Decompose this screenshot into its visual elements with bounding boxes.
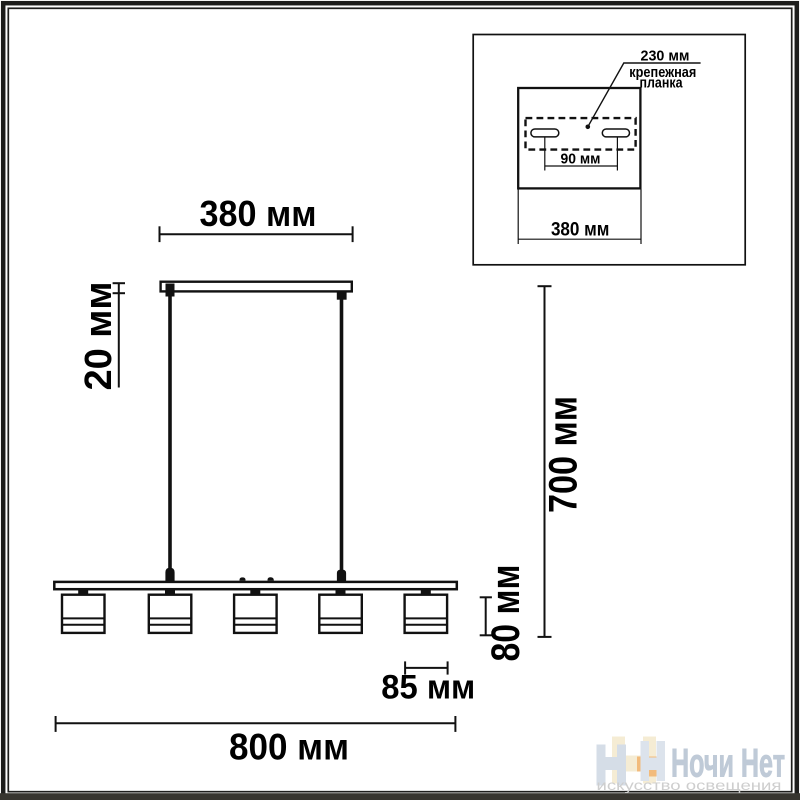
svg-text:планка: планка — [640, 76, 684, 92]
svg-text:20 мм: 20 мм — [78, 282, 120, 391]
svg-text:700 мм: 700 мм — [542, 396, 586, 513]
svg-text:искусство освещения: искусство освещения — [597, 778, 782, 793]
svg-text:90 мм: 90 мм — [561, 152, 601, 168]
svg-text:380 мм: 380 мм — [551, 219, 610, 240]
svg-text:230 мм: 230 мм — [641, 49, 690, 65]
svg-text:380 мм: 380 мм — [200, 193, 317, 234]
svg-text:800 мм: 800 мм — [229, 727, 349, 768]
svg-text:80 мм: 80 мм — [484, 565, 528, 662]
svg-text:85 мм: 85 мм — [381, 669, 475, 707]
